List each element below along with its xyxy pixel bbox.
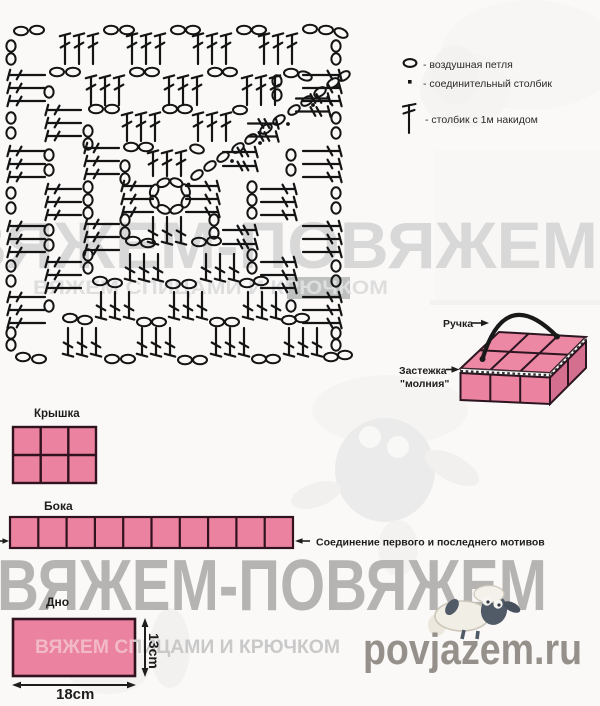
svg-text:13cm: 13cm [146, 633, 162, 669]
svg-text:Соединение первого и последнег: Соединение первого и последнего мотивов [316, 537, 545, 549]
svg-text:- столбик с 1м накидом: - столбик с 1м накидом [425, 114, 538, 126]
svg-text:Бока: Бока [44, 499, 73, 513]
svg-text:"молния": "молния" [400, 378, 449, 390]
svg-text:- воздушная петля: - воздушная петля [423, 59, 513, 71]
svg-text:18cm: 18cm [56, 686, 94, 701]
svg-text:povjazem.ru: povjazem.ru [363, 625, 582, 674]
svg-text:Дно: Дно [46, 595, 69, 609]
svg-text:Застежка: Застежка [399, 365, 447, 377]
svg-text:Крышка: Крышка [34, 408, 80, 420]
svg-text:- соединительный столбик: - соединительный столбик [423, 78, 552, 90]
svg-text:Ручка: Ручка [443, 318, 473, 330]
